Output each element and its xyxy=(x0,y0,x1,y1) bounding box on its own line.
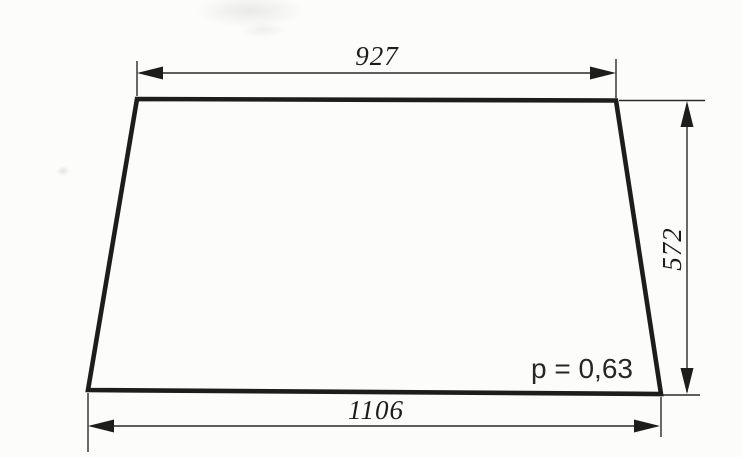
ratio-annotation-label: p = 0,63 xyxy=(531,353,633,384)
dimension-drawing: 927 572 1106 p = 0,63 xyxy=(0,0,742,457)
arrowhead-left-icon xyxy=(88,420,114,433)
right-dimension-group: 572 xyxy=(619,101,705,396)
bottom-dimension-group: 1106 xyxy=(88,393,661,452)
arrowhead-right-icon xyxy=(634,420,660,433)
arrowhead-right-icon xyxy=(590,67,616,80)
right-dimension-label: 572 xyxy=(657,227,687,271)
arrowhead-left-icon xyxy=(137,67,163,80)
technical-drawing-canvas: 927 572 1106 p = 0,63 xyxy=(0,0,742,457)
bottom-dimension-label: 1106 xyxy=(348,395,404,425)
trapezoid-outline xyxy=(88,99,661,394)
top-dimension-label: 927 xyxy=(355,41,399,71)
arrowhead-down-icon xyxy=(681,368,694,394)
top-dimension-group: 927 xyxy=(137,41,616,98)
arrowhead-up-icon xyxy=(681,101,694,127)
